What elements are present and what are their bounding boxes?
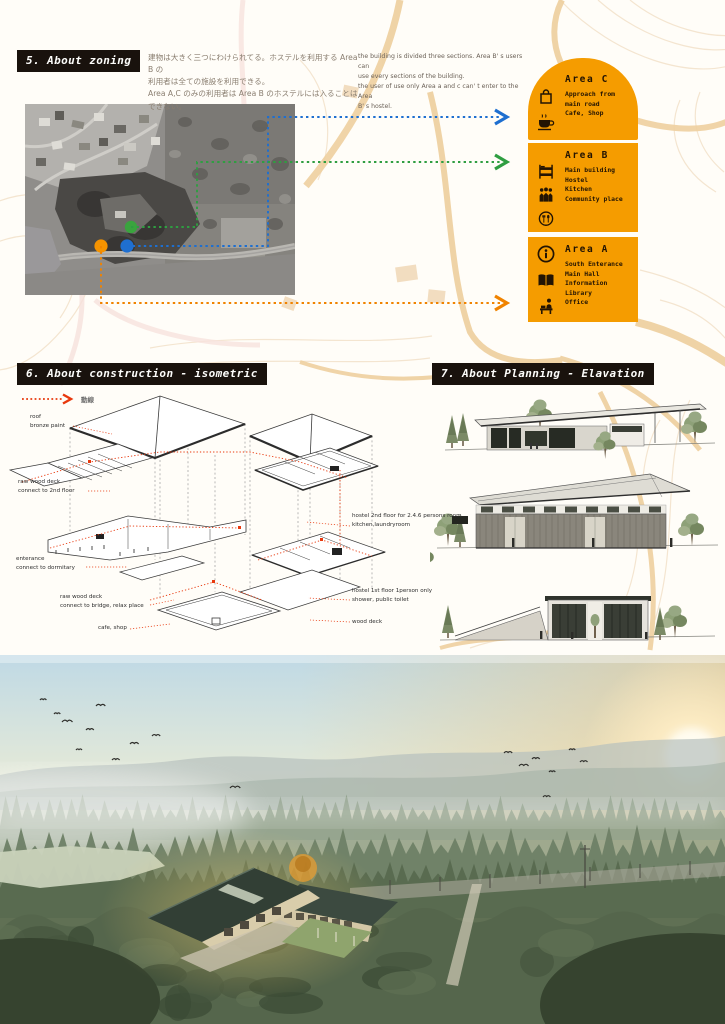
aerial-render bbox=[0, 655, 725, 1024]
people-group-icon bbox=[536, 186, 556, 203]
info-circle-icon bbox=[536, 244, 556, 264]
iso-label-roof: roof bronze paint bbox=[30, 413, 65, 430]
hostel-2f-plan bbox=[255, 448, 378, 490]
bridge-deck bbox=[120, 556, 204, 580]
zoning-description-japanese: 建物は大きく三つにわけられてる。ホステルを利用する Area B の 利用者は全… bbox=[148, 52, 360, 113]
area-b-line: Hostel bbox=[565, 176, 634, 186]
dining-cutlery-icon bbox=[536, 210, 556, 227]
area-b-line: Main building bbox=[565, 166, 634, 176]
area-c-line: Cafe, Shop bbox=[565, 109, 634, 119]
elevation-drawings bbox=[430, 388, 725, 653]
area-card-a: Area A South Enterance Main Hall Informa… bbox=[528, 237, 638, 322]
section-construction-title: 6. About construction - isometric bbox=[17, 363, 267, 385]
iso-label-deck-2f: raw wood deck connect to 2nd floor bbox=[18, 478, 75, 495]
area-c-name: Area C bbox=[565, 74, 634, 85]
area-c-icons bbox=[536, 74, 563, 135]
presentation-board: 5. About zoning 建物は大きく三つにわけられてる。ホステルを利用す… bbox=[0, 0, 725, 1024]
area-b-line: Community place bbox=[565, 195, 634, 205]
shopping-bag-icon bbox=[536, 87, 556, 107]
iso-label-deck-bridge: raw wood deck connect to bridge, relax p… bbox=[60, 593, 144, 610]
section-planning-title-text: 7. About Planning - Elavation bbox=[441, 367, 645, 380]
area-a-line: Main Hall bbox=[565, 270, 634, 280]
reception-desk-icon bbox=[536, 296, 556, 316]
iso-label-cafe: cafe, shop bbox=[98, 624, 127, 633]
iso-label-hostel-1f: hostel 1st floor 1person only shower, pu… bbox=[352, 587, 432, 604]
main-floor-plan bbox=[48, 516, 246, 560]
area-card-b: Area B Main building Hostel Kitchen Comm… bbox=[528, 143, 638, 232]
iso-label-hostel-2f: hostel 2nd floor for 2.4.6 persons room … bbox=[352, 512, 462, 529]
section-planning-title: 7. About Planning - Elavation bbox=[432, 363, 654, 385]
iso-label-wood-deck: wood deck bbox=[352, 618, 382, 627]
zoning-description-english: the building is divided three sections. … bbox=[358, 52, 526, 112]
area-c-line: Approach from main road bbox=[565, 90, 634, 109]
area-a-line: South Enterance bbox=[565, 260, 634, 270]
open-book-icon bbox=[536, 270, 556, 290]
area-a-line: Library bbox=[565, 289, 634, 299]
area-b-name: Area B bbox=[565, 150, 634, 161]
bunk-bed-icon bbox=[536, 163, 556, 180]
section-zoning-title: 5. About zoning bbox=[17, 50, 140, 72]
section-construction-title-text: 6. About construction - isometric bbox=[26, 367, 258, 380]
elevation-south bbox=[430, 543, 725, 653]
area-a-line: Office bbox=[565, 298, 634, 308]
clerestory-windows bbox=[481, 507, 661, 513]
section-zoning-title-text: 5. About zoning bbox=[26, 54, 131, 67]
area-a-name: Area A bbox=[565, 244, 634, 255]
iso-label-entrance: enterance connect to dormitary bbox=[16, 555, 75, 572]
area-b-icons bbox=[536, 150, 563, 227]
area-a-line: Information bbox=[565, 279, 634, 289]
area-b-line: Kitchen bbox=[565, 185, 634, 195]
circulation-legend-label: 動線 bbox=[81, 394, 94, 404]
elevation-north bbox=[445, 388, 715, 450]
coffee-cup-icon bbox=[536, 113, 556, 133]
area-a-icons bbox=[536, 244, 563, 317]
